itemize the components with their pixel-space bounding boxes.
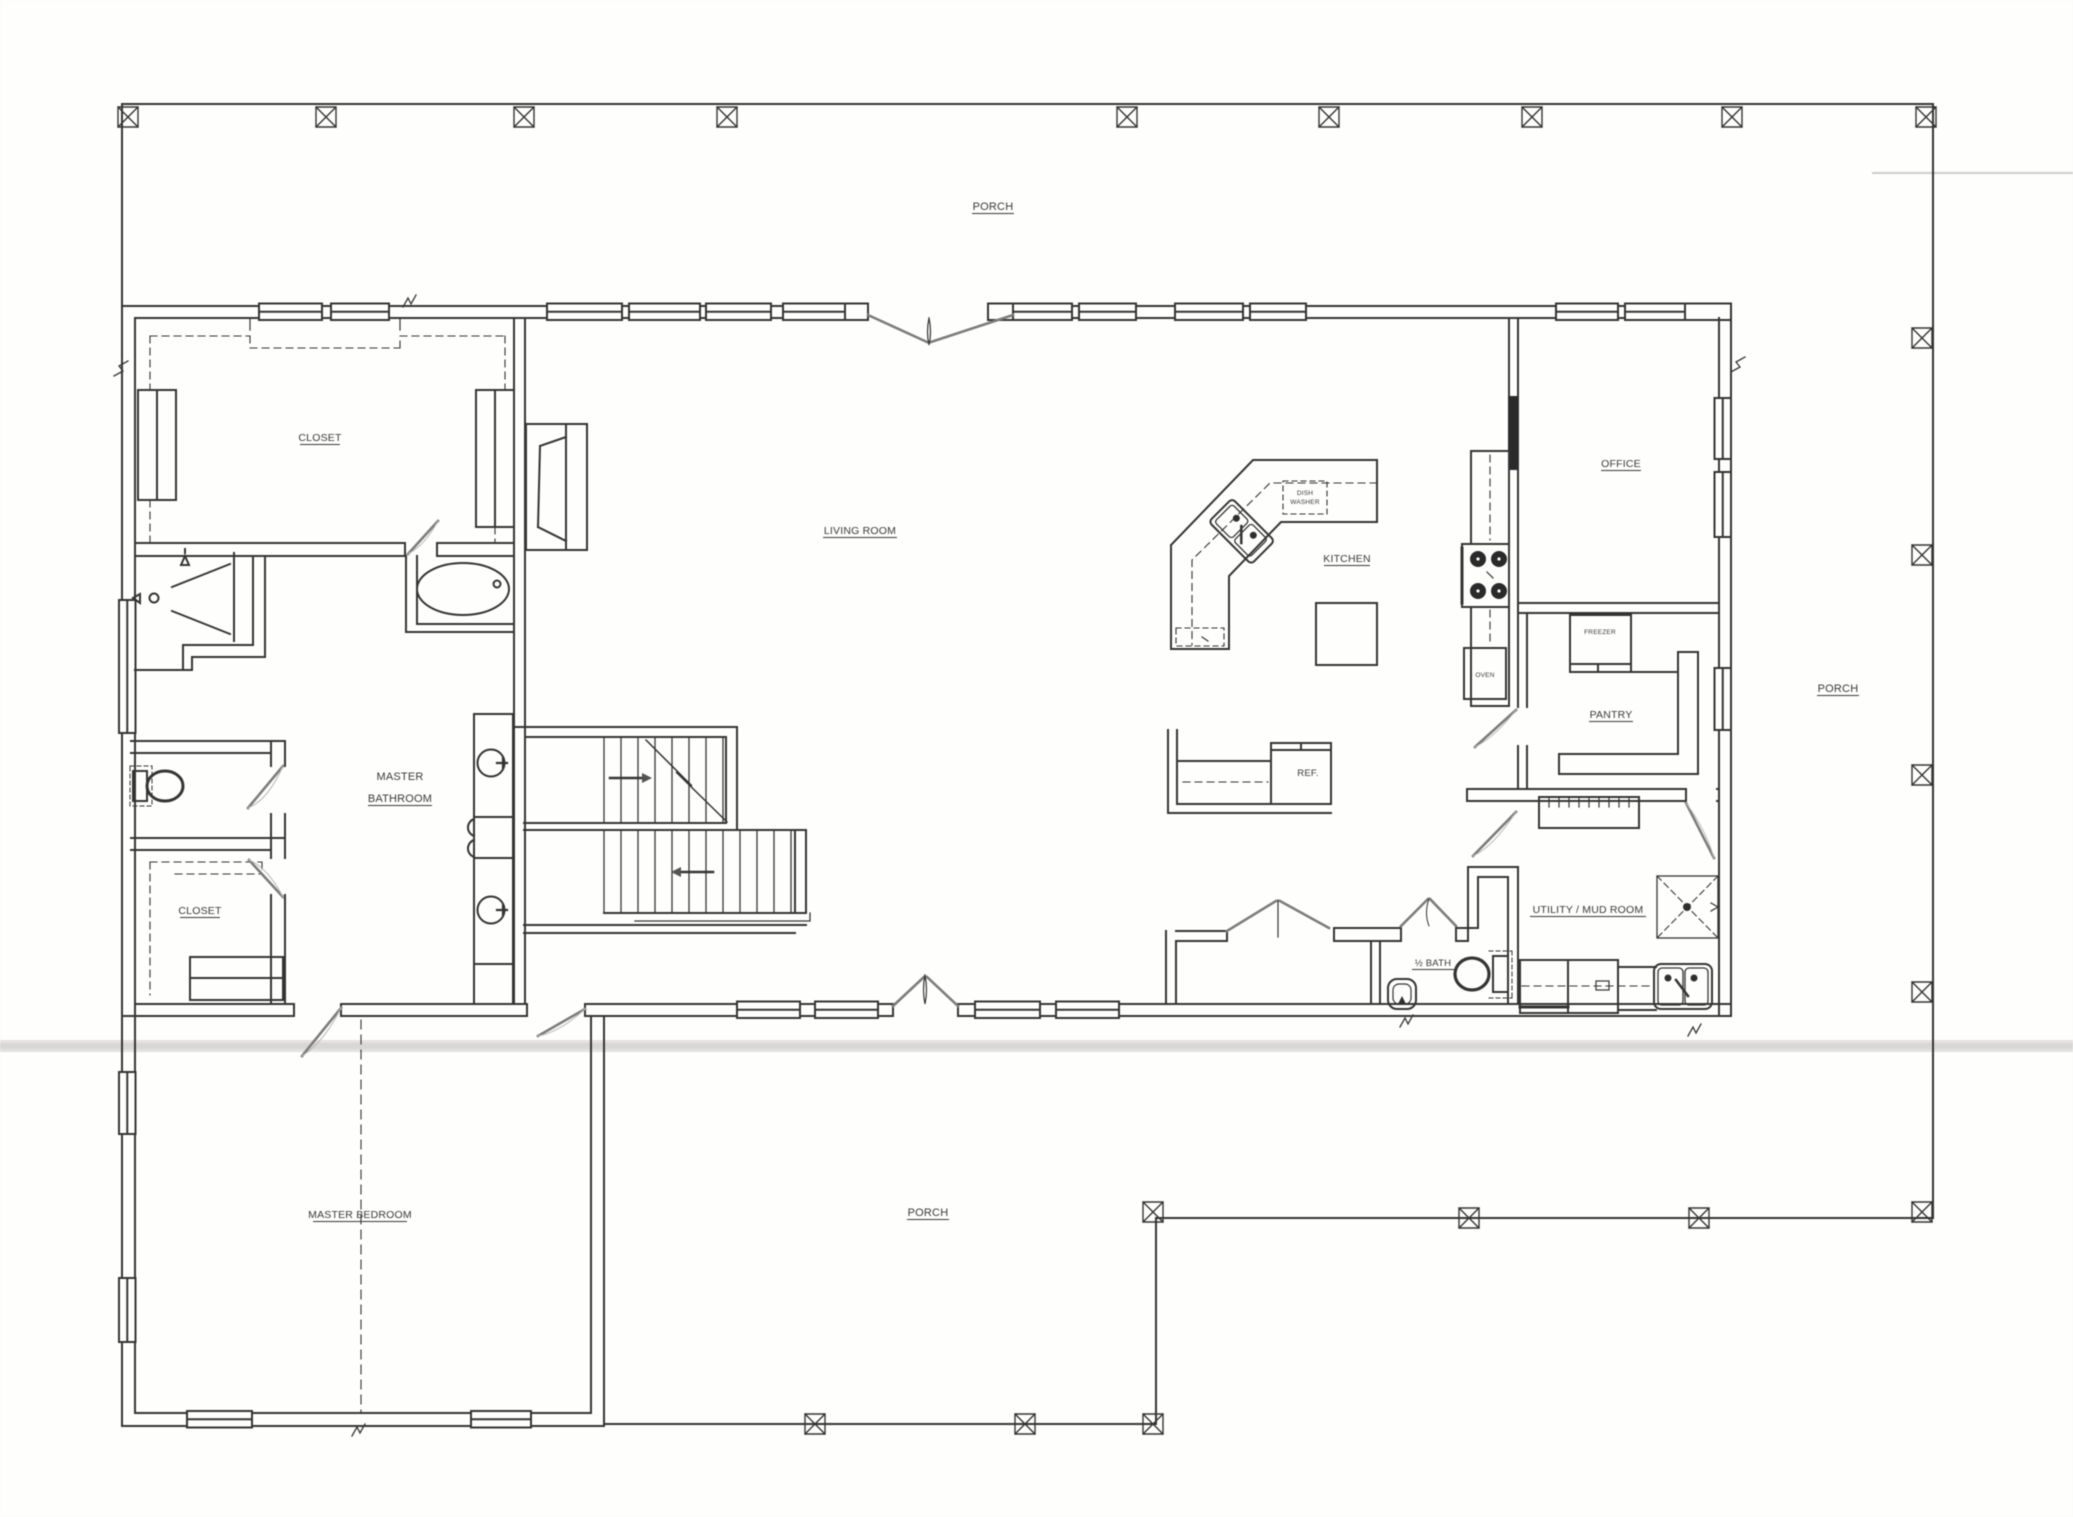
svg-text:REF.: REF.	[1297, 768, 1318, 779]
svg-text:WASHER: WASHER	[1290, 499, 1320, 506]
svg-text:DISH: DISH	[1297, 490, 1313, 497]
svg-text:FREEZER: FREEZER	[1584, 629, 1616, 636]
svg-text:½ BATH: ½ BATH	[1415, 958, 1451, 969]
svg-text:BATHROOM: BATHROOM	[368, 793, 432, 805]
svg-text:LIVING ROOM: LIVING ROOM	[824, 525, 896, 537]
svg-text:UTILITY / MUD ROOM: UTILITY / MUD ROOM	[1533, 904, 1644, 916]
svg-text:CLOSET: CLOSET	[178, 905, 222, 917]
svg-text:PANTRY: PANTRY	[1590, 709, 1633, 721]
svg-text:PORCH: PORCH	[973, 201, 1014, 213]
svg-text:CLOSET: CLOSET	[298, 432, 342, 444]
svg-text:OFFICE: OFFICE	[1601, 458, 1641, 470]
svg-text:PORCH: PORCH	[1818, 683, 1859, 695]
svg-text:MASTER: MASTER	[376, 771, 423, 783]
svg-text:MASTER BEDROOM: MASTER BEDROOM	[308, 1209, 412, 1221]
svg-text:OVEN: OVEN	[1475, 672, 1494, 679]
svg-text:PORCH: PORCH	[908, 1207, 949, 1219]
svg-text:KITCHEN: KITCHEN	[1323, 553, 1371, 565]
